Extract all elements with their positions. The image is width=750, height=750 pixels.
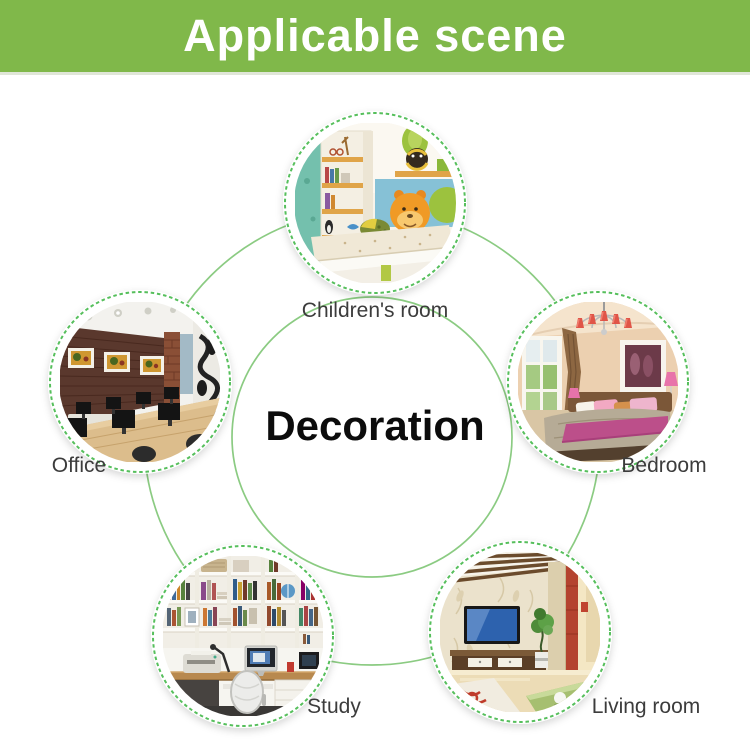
center-label: Decoration [265, 402, 484, 450]
photo-bedroom [518, 302, 678, 462]
scene-label-children-room: Children's room [302, 299, 448, 323]
photo-study [163, 556, 323, 716]
photo-office [60, 302, 220, 462]
scene-label-study: Study [307, 695, 361, 719]
scene-label-living-room: Living room [592, 695, 701, 719]
photo-living-room [440, 552, 600, 712]
page: Applicable scene [0, 0, 750, 750]
diagram-canvas [0, 0, 750, 750]
scene-label-office: Office [52, 454, 106, 478]
scene-diagram: Decoration Children's room Office Bedroo… [0, 0, 750, 750]
scene-label-bedroom: Bedroom [621, 454, 706, 478]
